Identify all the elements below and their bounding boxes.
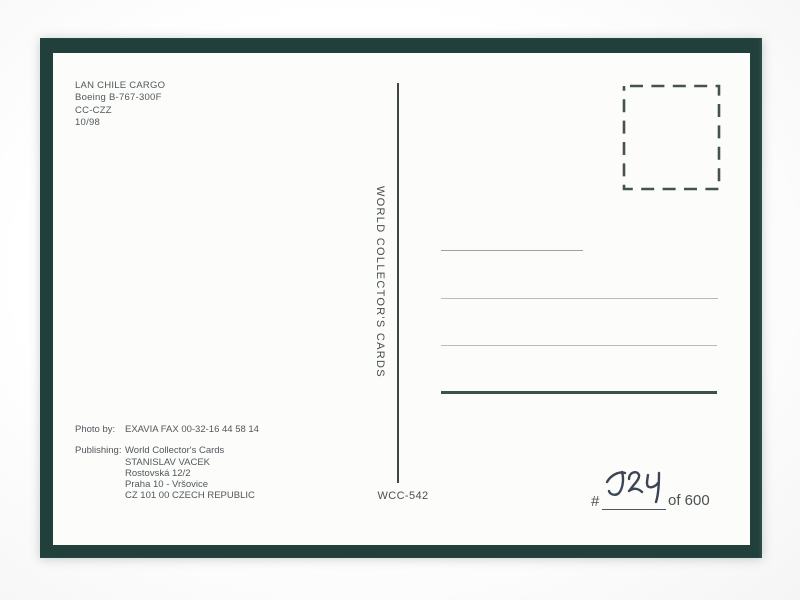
publishing-line: Rostovská 12/2: [125, 468, 255, 479]
edition-size: of 600: [668, 492, 710, 509]
aircraft-info-line: CC-CZZ: [75, 105, 165, 117]
publishing-line: CZ 101 00 CZECH REPUBLIC: [125, 490, 255, 501]
edition-numbering: # of 600: [589, 461, 724, 517]
photo-by-label: Photo by:: [75, 424, 125, 435]
aircraft-info-line: LAN CHILE CARGO: [75, 80, 165, 92]
publishing-credit-row: Publishing: World Collector's Cards STAN…: [75, 445, 259, 501]
number-underline: [602, 509, 666, 510]
address-line-1: [441, 250, 583, 251]
photo-by-value: EXAVIA FAX 00-32-16 44 58 14: [125, 424, 259, 435]
scanned-postcard: LAN CHILE CARGO Boeing B-767-300F CC-CZZ…: [0, 0, 800, 600]
address-line-4: [441, 391, 717, 394]
aircraft-info: LAN CHILE CARGO Boeing B-767-300F CC-CZZ…: [75, 80, 165, 129]
postcard-frame: LAN CHILE CARGO Boeing B-767-300F CC-CZZ…: [40, 38, 762, 558]
number-sign: #: [591, 493, 599, 510]
aircraft-info-line: Boeing B-767-300F: [75, 92, 165, 104]
aircraft-info-line: 10/98: [75, 117, 165, 129]
address-line-2: [441, 298, 718, 299]
address-line-3: [441, 345, 717, 346]
publisher-vertical-text: WORLD COLLECTOR'S CARDS: [374, 186, 386, 398]
credits-block: Photo by: EXAVIA FAX 00-32-16 44 58 14 P…: [75, 424, 259, 502]
publishing-line: World Collector's Cards: [125, 445, 255, 456]
publishing-address: World Collector's Cards STANISLAV VACEK …: [125, 445, 255, 501]
photo-credit-row: Photo by: EXAVIA FAX 00-32-16 44 58 14: [75, 424, 259, 435]
card-number: WCC-542: [365, 490, 441, 502]
handwritten-number: [604, 463, 666, 511]
center-divider-line: [397, 83, 399, 483]
postcard-back: LAN CHILE CARGO Boeing B-767-300F CC-CZZ…: [53, 53, 750, 545]
publishing-label: Publishing:: [75, 445, 125, 501]
publishing-line: STANISLAV VACEK: [125, 457, 255, 468]
stamp-box-outline: [622, 84, 721, 191]
publishing-line: Praha 10 - Vršovice: [125, 479, 255, 490]
